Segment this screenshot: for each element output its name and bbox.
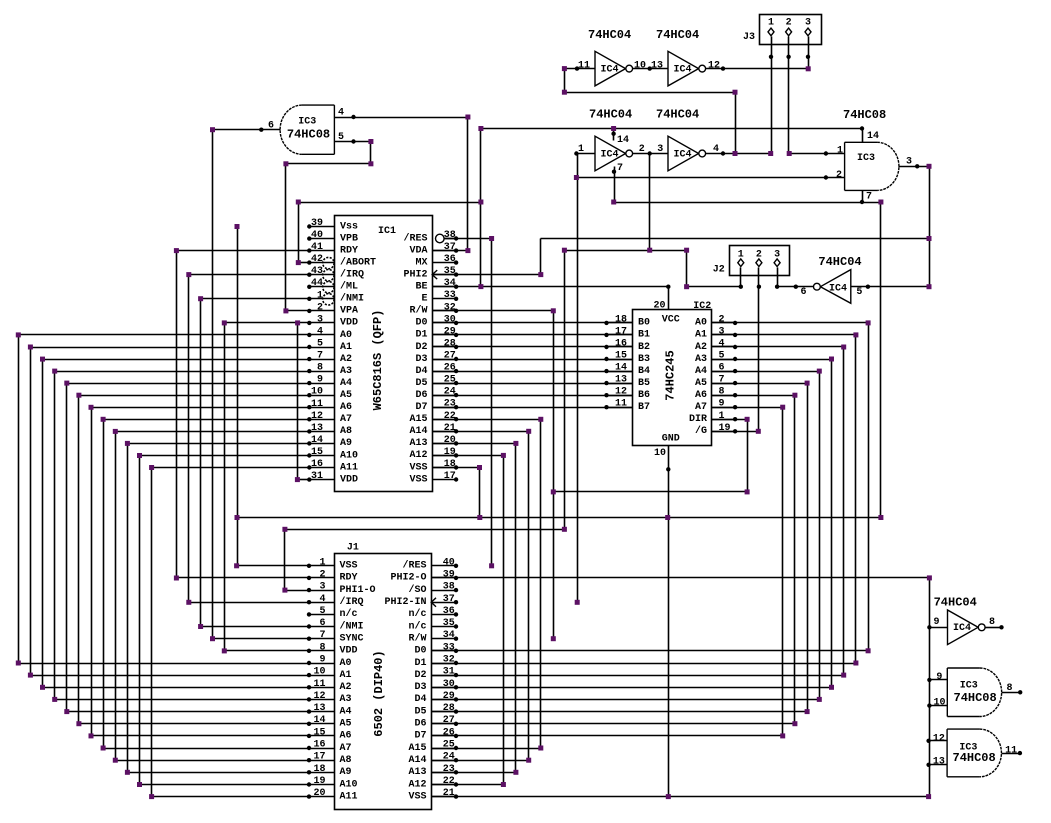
svg-text:A12: A12	[409, 450, 427, 461]
svg-text:IC4: IC4	[674, 64, 692, 75]
svg-text:9: 9	[719, 399, 725, 410]
svg-text:BE: BE	[415, 282, 427, 293]
svg-text:27: 27	[444, 351, 456, 362]
svg-text:1: 1	[317, 290, 323, 301]
svg-text:2: 2	[319, 569, 325, 580]
svg-text:29: 29	[443, 691, 455, 702]
svg-text:21: 21	[443, 788, 455, 799]
svg-text:A3: A3	[340, 694, 352, 705]
svg-text:DIR: DIR	[689, 414, 707, 425]
svg-text:13: 13	[313, 703, 325, 714]
svg-text:32: 32	[444, 302, 456, 313]
svg-text:2: 2	[756, 250, 762, 261]
svg-text:A4: A4	[340, 706, 352, 717]
svg-text:A1: A1	[695, 330, 707, 341]
svg-text:5: 5	[319, 606, 325, 617]
svg-text:19: 19	[444, 447, 456, 458]
svg-text:B6: B6	[638, 390, 650, 401]
svg-text:A12: A12	[408, 779, 426, 790]
svg-text:5: 5	[719, 351, 725, 362]
svg-text:8: 8	[317, 363, 323, 374]
svg-text:5: 5	[856, 287, 862, 298]
svg-text:3: 3	[317, 314, 323, 325]
svg-text:B2: B2	[638, 342, 650, 353]
svg-text:38: 38	[443, 582, 455, 593]
svg-text:12: 12	[615, 387, 627, 398]
svg-text:IC3: IC3	[298, 117, 316, 128]
svg-text:IC4: IC4	[601, 64, 619, 75]
svg-text:VCC: VCC	[662, 314, 680, 325]
svg-text:22: 22	[443, 776, 455, 787]
svg-text:IC4: IC4	[829, 283, 847, 294]
svg-text:74HC04: 74HC04	[818, 255, 861, 269]
svg-text:VSS: VSS	[409, 462, 427, 473]
svg-text:74HC04: 74HC04	[656, 108, 699, 122]
svg-text:B1: B1	[638, 330, 650, 341]
svg-text:A13: A13	[408, 767, 426, 778]
svg-text:8: 8	[319, 642, 325, 653]
svg-text:37: 37	[443, 594, 455, 605]
svg-text:10: 10	[654, 448, 666, 459]
svg-text:6: 6	[801, 287, 807, 298]
svg-text:D5: D5	[414, 706, 426, 717]
svg-text:20: 20	[653, 301, 665, 312]
svg-text:1: 1	[768, 18, 774, 29]
svg-text:9: 9	[934, 617, 940, 628]
svg-text:31: 31	[311, 471, 323, 482]
svg-text:11: 11	[1005, 746, 1017, 757]
svg-text:A7: A7	[340, 414, 352, 425]
svg-text:74HC04: 74HC04	[934, 596, 977, 610]
svg-text:1: 1	[738, 250, 744, 261]
svg-text:MX: MX	[415, 257, 427, 268]
svg-text:3: 3	[774, 250, 780, 261]
svg-text:A3: A3	[695, 354, 707, 365]
svg-text:A1: A1	[340, 342, 352, 353]
svg-text:4: 4	[317, 326, 323, 337]
svg-text:VPA: VPA	[340, 306, 358, 317]
svg-text:5: 5	[317, 339, 323, 350]
svg-text:A10: A10	[340, 450, 358, 461]
svg-text:A14: A14	[409, 426, 427, 437]
svg-text:VDD: VDD	[340, 646, 358, 657]
svg-text:D3: D3	[414, 682, 426, 693]
svg-text:33: 33	[444, 290, 456, 301]
svg-text:8: 8	[719, 387, 725, 398]
svg-text:VDD: VDD	[340, 474, 358, 485]
svg-text:/ABORT: /ABORT	[340, 256, 376, 268]
svg-text:A15: A15	[408, 743, 426, 754]
svg-text:PHI2: PHI2	[403, 269, 427, 280]
svg-text:6: 6	[268, 121, 274, 132]
svg-text:PHI2-O: PHI2-O	[390, 573, 426, 584]
svg-text:6502 (DIP40): 6502 (DIP40)	[372, 650, 386, 736]
svg-text:17: 17	[615, 326, 627, 337]
svg-text:Vss: Vss	[340, 221, 358, 232]
svg-text:2: 2	[836, 170, 842, 181]
svg-text:37: 37	[444, 242, 456, 253]
svg-text:10: 10	[311, 387, 323, 398]
svg-text:PHI1-O: PHI1-O	[340, 585, 376, 596]
svg-text:PHI2-IN: PHI2-IN	[384, 597, 426, 608]
svg-text:74HC08: 74HC08	[287, 127, 330, 141]
svg-text:14: 14	[615, 363, 627, 374]
svg-text:12: 12	[311, 411, 323, 422]
svg-text:A9: A9	[340, 438, 352, 449]
svg-text:D2: D2	[414, 670, 426, 681]
svg-text:11: 11	[578, 61, 590, 72]
svg-text:3: 3	[906, 156, 912, 167]
svg-text:R/W: R/W	[409, 305, 427, 317]
svg-text:/IRQ: /IRQ	[340, 269, 364, 281]
svg-text:n/c: n/c	[408, 620, 426, 632]
svg-text:40: 40	[311, 230, 323, 241]
svg-text:43: 43	[311, 266, 323, 277]
svg-text:74HC04: 74HC04	[588, 28, 631, 42]
svg-text:A6: A6	[340, 402, 352, 413]
svg-text:13: 13	[615, 375, 627, 386]
svg-text:J2: J2	[713, 265, 725, 276]
svg-text:RDY: RDY	[340, 245, 358, 256]
svg-text:E: E	[421, 294, 427, 305]
svg-text:74HC08: 74HC08	[953, 751, 996, 765]
svg-text:A3: A3	[340, 366, 352, 377]
svg-text:12: 12	[313, 691, 325, 702]
svg-text:4: 4	[713, 144, 719, 155]
svg-text:23: 23	[444, 399, 456, 410]
svg-text:/NMI: /NMI	[340, 620, 364, 632]
svg-text:14: 14	[867, 131, 879, 142]
svg-text:3: 3	[319, 582, 325, 593]
svg-text:A14: A14	[408, 755, 426, 766]
svg-text:7: 7	[617, 163, 623, 174]
svg-text:16: 16	[311, 459, 323, 470]
svg-text:3: 3	[657, 144, 663, 155]
svg-text:13: 13	[311, 423, 323, 434]
svg-text:18: 18	[313, 764, 325, 775]
svg-text:D7: D7	[414, 731, 426, 742]
svg-text:A7: A7	[340, 743, 352, 754]
svg-text:D7: D7	[415, 402, 427, 413]
svg-text:74HC08: 74HC08	[843, 108, 886, 122]
svg-text:2: 2	[317, 302, 323, 313]
svg-text:D5: D5	[415, 378, 427, 389]
svg-text:A5: A5	[340, 390, 352, 401]
svg-text:/ML: /ML	[340, 281, 358, 293]
svg-text:15: 15	[615, 351, 627, 362]
svg-text:5: 5	[338, 132, 344, 143]
svg-text:9: 9	[319, 655, 325, 666]
svg-text:35: 35	[443, 618, 455, 629]
svg-text:1: 1	[578, 144, 584, 155]
svg-text:A4: A4	[340, 378, 352, 389]
svg-text:39: 39	[311, 218, 323, 229]
svg-text:A8: A8	[340, 755, 352, 766]
svg-text:7: 7	[317, 351, 323, 362]
svg-text:1: 1	[319, 557, 325, 568]
svg-text:VSS: VSS	[408, 791, 426, 802]
svg-text:26: 26	[443, 727, 455, 738]
svg-text:A5: A5	[695, 378, 707, 389]
svg-text:A1: A1	[340, 670, 352, 681]
svg-text:/NMI: /NMI	[340, 293, 364, 305]
svg-text:IC4: IC4	[601, 149, 619, 160]
svg-text:8: 8	[1007, 683, 1013, 694]
svg-text:19: 19	[313, 776, 325, 787]
svg-text:A11: A11	[340, 791, 358, 802]
svg-text:1: 1	[719, 411, 725, 422]
svg-text:A0: A0	[695, 318, 707, 329]
svg-text:B7: B7	[638, 402, 650, 413]
svg-text:24: 24	[444, 387, 456, 398]
svg-text:A5: A5	[340, 719, 352, 730]
svg-text:A8: A8	[340, 426, 352, 437]
svg-text:VPB: VPB	[340, 233, 358, 244]
svg-text:8: 8	[989, 617, 995, 628]
svg-text:19: 19	[719, 423, 731, 434]
svg-text:22: 22	[444, 411, 456, 422]
svg-text:GND: GND	[662, 433, 680, 444]
svg-text:23: 23	[443, 764, 455, 775]
svg-text:3: 3	[805, 18, 811, 29]
svg-text:A0: A0	[340, 330, 352, 341]
svg-text:B3: B3	[638, 354, 650, 365]
svg-text:IC4: IC4	[953, 623, 971, 634]
svg-text:17: 17	[444, 471, 456, 482]
svg-text:25: 25	[444, 375, 456, 386]
svg-text:10: 10	[634, 61, 646, 72]
svg-text:A7: A7	[695, 402, 707, 413]
svg-text:n/c: n/c	[340, 608, 358, 620]
svg-text:42: 42	[311, 254, 323, 265]
svg-text:A11: A11	[340, 462, 358, 473]
svg-text:RDY: RDY	[340, 573, 358, 584]
svg-text:A9: A9	[340, 767, 352, 778]
svg-text:D4: D4	[415, 366, 427, 377]
svg-text:VDA: VDA	[409, 245, 427, 256]
svg-text:B4: B4	[638, 366, 650, 377]
svg-text:J3: J3	[743, 32, 755, 43]
svg-text:4: 4	[338, 108, 344, 119]
svg-text:18: 18	[444, 459, 456, 470]
svg-text:28: 28	[443, 703, 455, 714]
svg-text:3: 3	[719, 326, 725, 337]
svg-text:D1: D1	[414, 658, 426, 669]
svg-text:/IRQ: /IRQ	[340, 596, 364, 608]
svg-text:6: 6	[719, 363, 725, 374]
svg-text:26: 26	[444, 363, 456, 374]
svg-text:33: 33	[443, 642, 455, 653]
svg-text:B5: B5	[638, 378, 650, 389]
svg-text:10: 10	[934, 698, 946, 709]
svg-text:/RES: /RES	[402, 560, 426, 572]
svg-text:IC3: IC3	[960, 680, 978, 691]
svg-text:IC4: IC4	[674, 149, 692, 160]
svg-text:74HC08: 74HC08	[954, 691, 997, 705]
svg-text:11: 11	[311, 399, 323, 410]
svg-text:7: 7	[319, 630, 325, 641]
svg-text:7: 7	[866, 191, 872, 202]
svg-text:1: 1	[837, 145, 843, 156]
svg-text:25: 25	[443, 740, 455, 751]
svg-text:A10: A10	[340, 779, 358, 790]
svg-text:24: 24	[443, 752, 455, 763]
svg-text:74HC04: 74HC04	[589, 108, 632, 122]
svg-text:20: 20	[313, 788, 325, 799]
svg-text:D6: D6	[415, 390, 427, 401]
svg-text:J1: J1	[347, 543, 359, 554]
svg-text:74HC04: 74HC04	[656, 28, 699, 42]
svg-text:21: 21	[444, 423, 456, 434]
svg-text:74HC245: 74HC245	[664, 350, 678, 400]
svg-text:IC3: IC3	[857, 153, 875, 164]
svg-text:4: 4	[719, 339, 725, 350]
svg-text:31: 31	[443, 667, 455, 678]
svg-text:2: 2	[786, 18, 792, 29]
svg-text:6: 6	[319, 618, 325, 629]
svg-text:10: 10	[313, 667, 325, 678]
svg-text:38: 38	[444, 230, 456, 241]
svg-text:36: 36	[443, 606, 455, 617]
svg-text:A15: A15	[409, 414, 427, 425]
svg-text:11: 11	[313, 679, 325, 690]
svg-text:12: 12	[708, 61, 720, 72]
svg-text:A13: A13	[409, 438, 427, 449]
svg-text:D0: D0	[414, 646, 426, 657]
svg-text:A4: A4	[695, 366, 707, 377]
svg-text:D0: D0	[415, 318, 427, 329]
svg-text:B0: B0	[638, 318, 650, 329]
svg-text:32: 32	[443, 655, 455, 666]
svg-text:39: 39	[443, 569, 455, 580]
svg-text:D3: D3	[415, 354, 427, 365]
svg-text:9: 9	[936, 672, 942, 683]
svg-text:D1: D1	[415, 330, 427, 341]
svg-text:VSS: VSS	[409, 474, 427, 485]
svg-text:14: 14	[313, 715, 325, 726]
svg-text:30: 30	[444, 314, 456, 325]
svg-text:VDD: VDD	[340, 318, 358, 329]
svg-text:W65C816S (QFP): W65C816S (QFP)	[371, 310, 385, 411]
svg-text:D2: D2	[415, 342, 427, 353]
svg-text:11: 11	[615, 399, 627, 410]
svg-text:IC1: IC1	[378, 226, 396, 237]
svg-text:18: 18	[615, 314, 627, 325]
svg-text:44: 44	[311, 278, 323, 289]
svg-text:A2: A2	[340, 354, 352, 365]
svg-text:D6: D6	[414, 719, 426, 730]
svg-text:16: 16	[313, 740, 325, 751]
svg-text:14: 14	[311, 435, 323, 446]
svg-text:A2: A2	[340, 682, 352, 693]
svg-text:SYNC: SYNC	[340, 634, 364, 645]
svg-text:29: 29	[444, 326, 456, 337]
svg-text:A6: A6	[695, 390, 707, 401]
svg-text:35: 35	[444, 266, 456, 277]
svg-text:16: 16	[615, 339, 627, 350]
svg-text:15: 15	[313, 727, 325, 738]
svg-text:2: 2	[719, 314, 725, 325]
svg-text:15: 15	[311, 447, 323, 458]
svg-text:R/W: R/W	[408, 633, 426, 645]
svg-text:VSS: VSS	[340, 561, 358, 572]
svg-text:/RES: /RES	[403, 232, 427, 244]
svg-text:2: 2	[639, 144, 645, 155]
svg-text:/G: /G	[695, 425, 707, 437]
svg-text:9: 9	[317, 375, 323, 386]
svg-text:20: 20	[444, 435, 456, 446]
svg-text:40: 40	[443, 557, 455, 568]
svg-text:14: 14	[617, 135, 629, 146]
svg-text:34: 34	[444, 278, 456, 289]
svg-text:17: 17	[313, 752, 325, 763]
svg-text:12: 12	[933, 734, 945, 745]
svg-text:13: 13	[651, 61, 663, 72]
svg-text:27: 27	[443, 715, 455, 726]
svg-text:D4: D4	[414, 694, 426, 705]
svg-text:4: 4	[319, 594, 325, 605]
svg-text:30: 30	[443, 679, 455, 690]
svg-text:36: 36	[444, 254, 456, 265]
svg-text:28: 28	[444, 338, 456, 349]
svg-text:41: 41	[311, 242, 323, 253]
svg-text:n/c: n/c	[408, 608, 426, 620]
svg-text:A2: A2	[695, 342, 707, 353]
svg-text:A6: A6	[340, 731, 352, 742]
svg-text:34: 34	[443, 630, 455, 641]
svg-text:7: 7	[719, 375, 725, 386]
svg-text:13: 13	[933, 756, 945, 767]
svg-text:A0: A0	[340, 658, 352, 669]
svg-text:IC2: IC2	[693, 301, 711, 312]
svg-text:/SO: /SO	[408, 584, 426, 596]
